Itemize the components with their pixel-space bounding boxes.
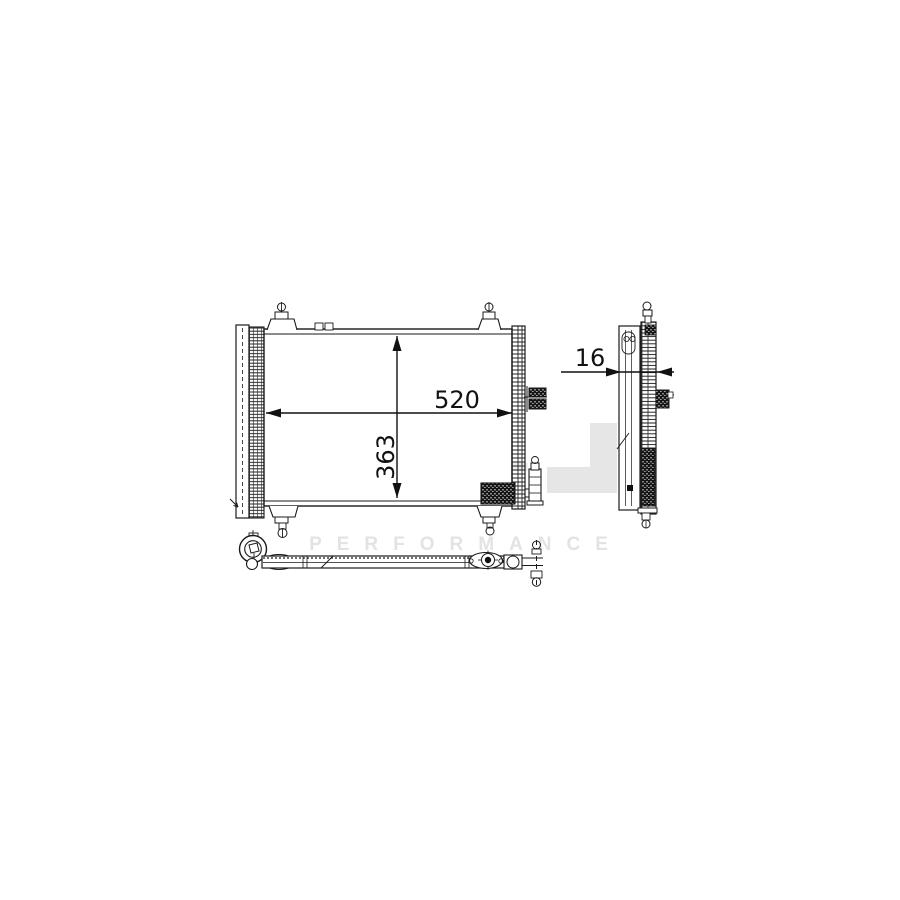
side-bottom-pin (638, 508, 657, 528)
bottom-right-fitting (522, 540, 543, 588)
width-dimension-label: 520 (430, 388, 484, 412)
front-bottom-left-bracket (269, 506, 298, 538)
height-dimension-label: 363 (374, 431, 400, 483)
front-top-right-bracket (478, 302, 501, 330)
bottom-view (240, 530, 544, 588)
side-right-block (656, 390, 674, 408)
depth-dimension-label: 16 (572, 346, 608, 370)
condenser-line-art (0, 0, 900, 900)
side-lower-connector (642, 448, 655, 506)
front-view (230, 302, 547, 538)
side-view (617, 302, 674, 528)
front-top-left-bracket (267, 302, 297, 330)
front-left-header-fins (249, 327, 264, 518)
technical-drawing-canvas: AHL PERFORMANCE (0, 0, 900, 900)
front-right-header (512, 326, 525, 509)
front-bottom-right-bracket (477, 506, 502, 535)
side-top-pin (643, 302, 652, 323)
depth-arrow-right (657, 368, 672, 377)
bottom-clamp (504, 555, 522, 569)
front-upper-connector (524, 386, 547, 412)
